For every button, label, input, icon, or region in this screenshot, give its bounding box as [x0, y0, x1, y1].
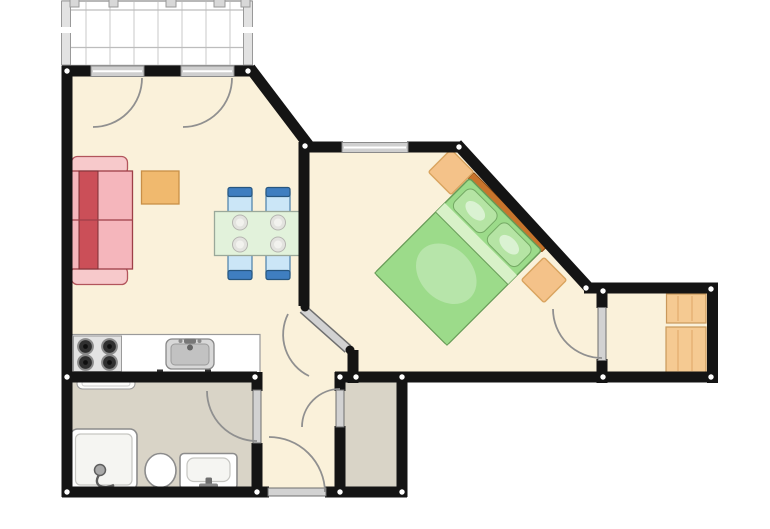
faucet-spout	[187, 345, 193, 351]
bathroom-sink[interactable]	[180, 454, 237, 490]
wall-joint-dot	[399, 489, 404, 494]
wall-joint-dot	[600, 288, 605, 293]
rail-post	[70, 0, 79, 7]
floor-plan-page	[0, 0, 770, 525]
stove[interactable]	[74, 336, 122, 372]
wall-joint-dot	[337, 489, 342, 494]
bedroom-window[interactable]	[342, 143, 408, 153]
dining-chair-bottom-right[interactable]	[266, 255, 290, 280]
dining-table[interactable]	[215, 212, 304, 256]
burner-center	[83, 344, 88, 349]
wardrobe-2[interactable]	[666, 327, 706, 373]
dining-chair-top-left[interactable]	[228, 188, 252, 213]
door-leaf	[336, 390, 344, 427]
balcony-deck	[63, 1, 252, 66]
chair-back	[228, 188, 252, 197]
balcony-rail-gap	[61, 27, 72, 33]
wall-joint-dot	[583, 285, 588, 290]
wall-joint-dot	[708, 286, 713, 291]
toilet[interactable]	[145, 454, 176, 488]
wall-joint-dot	[254, 489, 259, 494]
wall-joint-dot	[245, 68, 250, 73]
side-table[interactable]	[142, 171, 180, 204]
burner-center	[107, 360, 112, 365]
shower-tray-inner	[76, 434, 133, 485]
burner-center	[83, 360, 88, 365]
floor-plan-canvas	[0, 0, 770, 525]
door-leaf	[268, 488, 326, 496]
dining-chair-bottom-left[interactable]	[228, 255, 252, 280]
wall-joint-dot	[64, 374, 69, 379]
door-hinge	[301, 303, 310, 312]
wall-joint-dot	[708, 374, 713, 379]
plate-center	[236, 241, 244, 249]
shower[interactable]	[71, 429, 138, 490]
closet-floor	[340, 377, 402, 492]
plate-center	[274, 219, 282, 227]
door-leaf	[253, 390, 261, 443]
sofa[interactable]	[70, 157, 133, 285]
rail-post	[109, 0, 118, 7]
chair-back	[266, 188, 290, 197]
table-top	[215, 212, 304, 256]
faucet-bar	[184, 339, 196, 344]
door-leaf	[598, 308, 606, 361]
wall-joint-dot	[600, 374, 605, 379]
wall-joint-dot	[302, 143, 307, 148]
door-hinge	[346, 346, 355, 355]
balcony	[61, 0, 254, 66]
wall-joint-dot	[399, 374, 404, 379]
wall-joint-dot	[64, 68, 69, 73]
wardrobe-body	[667, 294, 707, 323]
chair-back	[228, 271, 252, 280]
plate-center	[236, 219, 244, 227]
wall-joint-dot	[456, 144, 461, 149]
wall-joint-dot	[337, 374, 342, 379]
kitchen-sink[interactable]	[166, 339, 214, 370]
plate-center	[274, 241, 282, 249]
faucet-handle	[198, 339, 202, 343]
chair-back	[266, 271, 290, 280]
shower-head	[95, 465, 106, 476]
burner-center	[107, 344, 112, 349]
dining-chair-top-right[interactable]	[266, 188, 290, 213]
wall-joint-dot	[64, 489, 69, 494]
wall-joint-dot	[252, 374, 257, 379]
rail-post	[214, 0, 225, 7]
rail-post	[166, 0, 176, 7]
wardrobe-1[interactable]	[667, 294, 707, 323]
faucet-handle	[179, 339, 183, 343]
rail-post	[241, 0, 250, 7]
wall-joint-dot	[353, 374, 358, 379]
wardrobe-body	[666, 327, 706, 373]
balcony-rail-gap	[243, 27, 254, 33]
